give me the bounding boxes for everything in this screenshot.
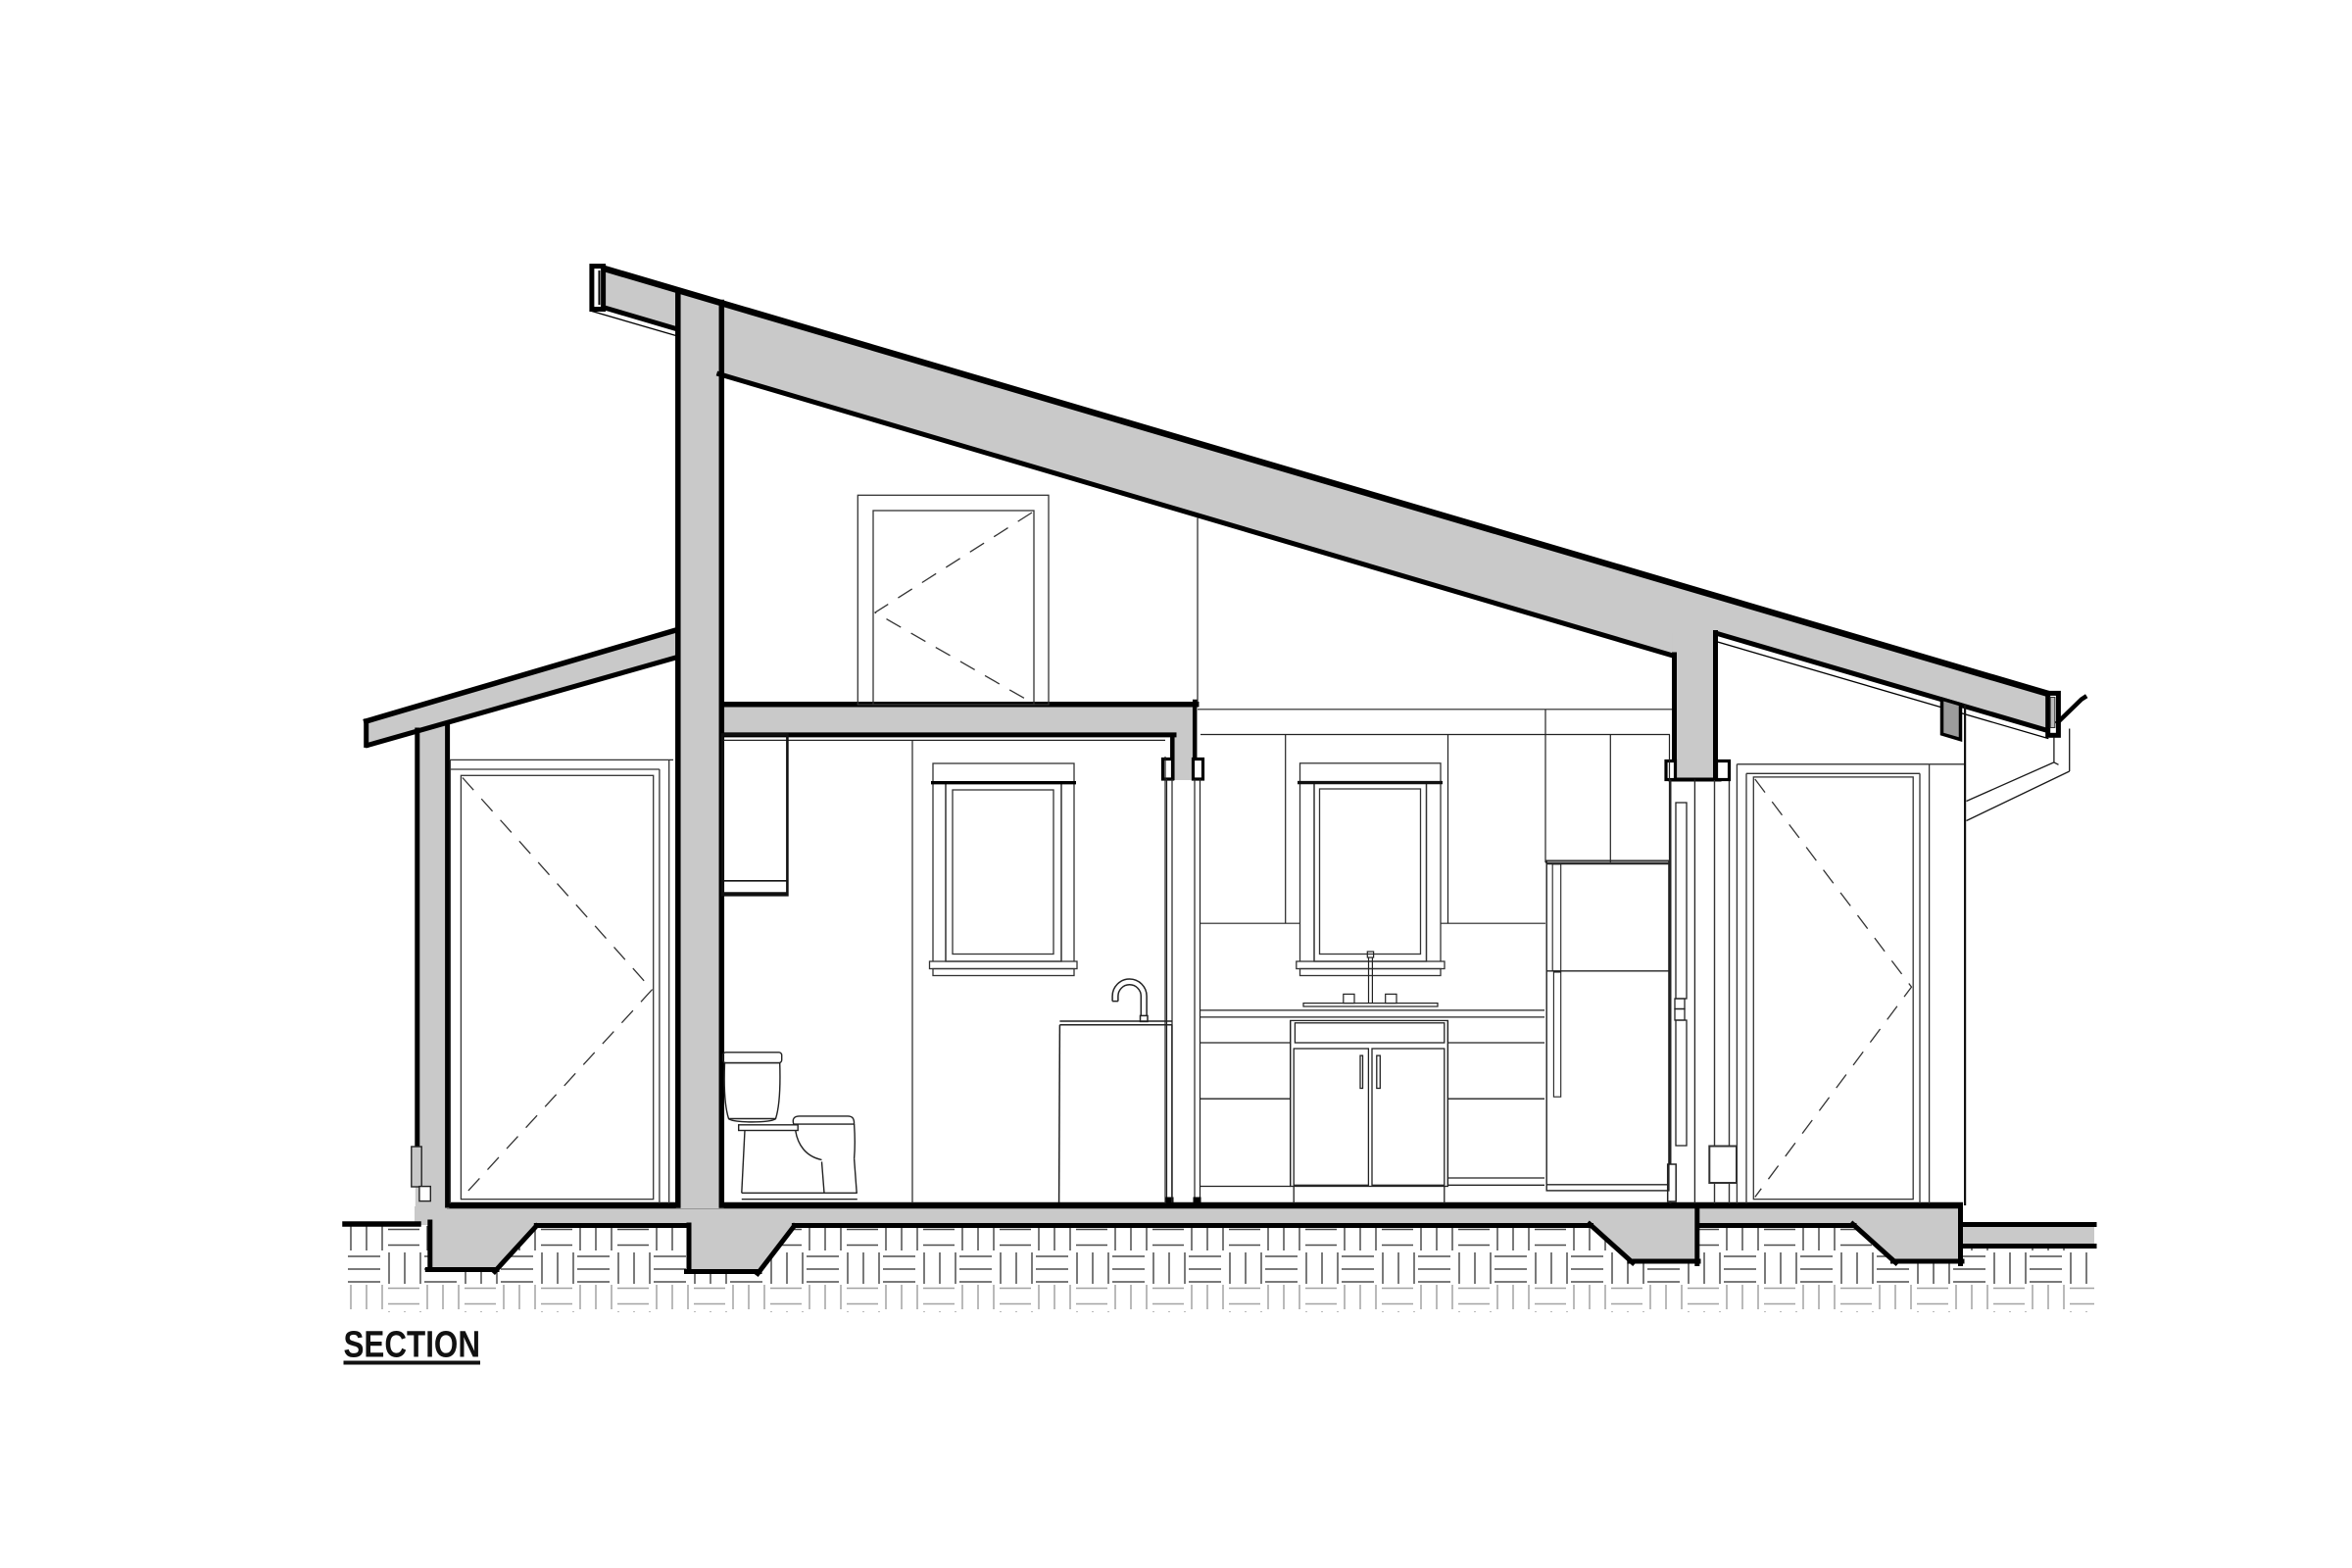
svg-text:SECTION: SECTION [344, 1325, 481, 1366]
